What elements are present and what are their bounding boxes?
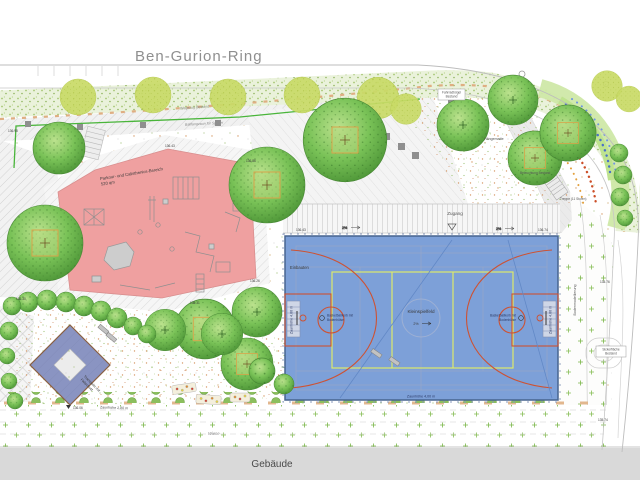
tree-icon — [391, 94, 422, 125]
svg-text:135.76: 135.76 — [600, 280, 610, 284]
court-surface — [285, 236, 558, 400]
fahrrad-box: FahrradbügelBestand — [438, 89, 465, 100]
tree-icon — [135, 77, 171, 113]
svg-text:136.30: 136.30 — [16, 297, 26, 301]
basketball-court: Basketballkorb mitBodenhülse Basketballk… — [283, 234, 560, 402]
svg-text:2%: 2% — [342, 226, 348, 230]
bush-icon — [610, 144, 628, 162]
street-name: Ben-Gurion-Ring — [135, 48, 263, 65]
svg-text:2%: 2% — [496, 227, 502, 231]
svg-text:136.43: 136.43 — [165, 144, 175, 148]
bush-icon — [56, 292, 76, 312]
svg-text:Bodenmodellierung: Bodenmodellierung — [573, 285, 577, 316]
sicker-box: SickerflächeBestand — [596, 346, 626, 357]
svg-text:136.26: 136.26 — [250, 279, 260, 283]
svg-text:Hängematte: Hängematte — [484, 137, 504, 141]
fence-label-right: Zaunhöhe 4,00 m — [549, 306, 553, 334]
svg-text:136.74: 136.74 — [538, 228, 548, 232]
svg-text:136.86: 136.86 — [246, 159, 256, 163]
bush-icon — [7, 393, 23, 409]
tree-icon — [210, 79, 246, 115]
svg-text:135.74: 135.74 — [598, 418, 608, 422]
tree-icon — [249, 358, 275, 384]
bush-icon — [0, 322, 18, 340]
bush-icon — [37, 290, 57, 310]
bush-icon — [0, 348, 15, 364]
svg-text:Treppe (11 Stufen): Treppe (11 Stufen) — [560, 197, 586, 201]
svg-text:136.06: 136.06 — [73, 406, 83, 410]
bush-icon — [138, 325, 156, 343]
bush-icon — [18, 292, 38, 312]
svg-text:Wiese: Wiese — [208, 431, 220, 436]
building-band — [0, 448, 640, 480]
bush-icon — [614, 166, 632, 184]
svg-text:Zugang: Zugang — [447, 211, 463, 216]
court-center-label: Kleinspielfeld — [407, 309, 435, 314]
bush-icon — [617, 210, 633, 226]
bush-icon — [1, 373, 17, 389]
tree-icon — [284, 77, 320, 113]
svg-text:136.31: 136.31 — [190, 301, 200, 305]
fence-label-left: Zaunhöhe 4,00 m — [290, 306, 294, 334]
tree-icon — [60, 79, 96, 115]
court-corner-label: Einbauten — [290, 265, 310, 270]
tree-icon — [616, 86, 640, 112]
tree-icon — [274, 374, 294, 394]
svg-text:2%: 2% — [413, 322, 419, 326]
zugang-band: Zugang — [283, 204, 560, 233]
site-plan: Gebäude Ben-Gurion-Ring Ballfangzaun für… — [0, 0, 640, 480]
bush-icon — [611, 188, 629, 206]
fence-label-bottom: Zaunhöhe 4,00 m — [407, 395, 435, 399]
svg-text:136.43: 136.43 — [296, 228, 306, 232]
svg-text:Beleuchtung Bestand: Beleuchtung Bestand — [520, 171, 551, 175]
building-label: Gebäude — [251, 459, 293, 470]
tree-icon — [33, 122, 85, 174]
svg-text:136.98: 136.98 — [8, 129, 18, 133]
